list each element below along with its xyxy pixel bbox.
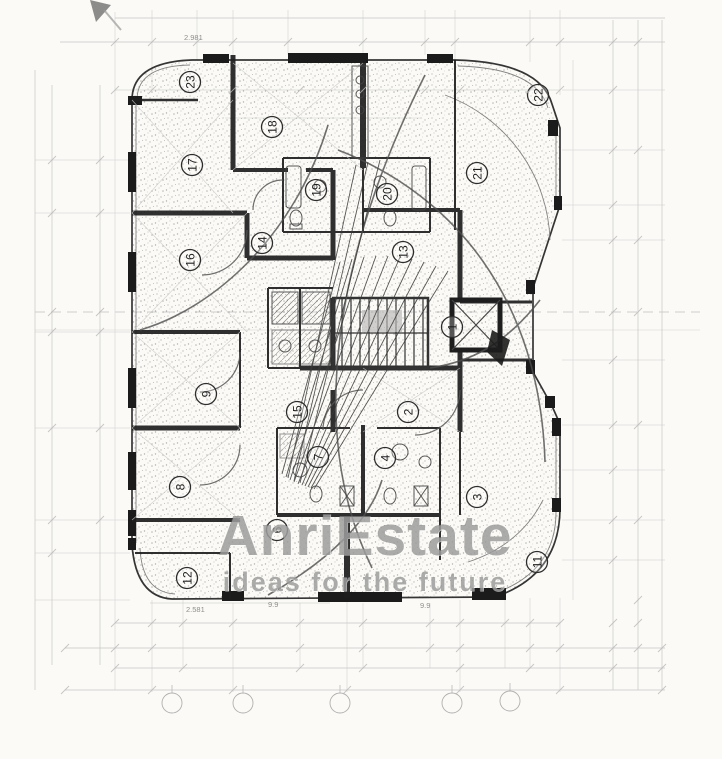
room-marker: 18 (262, 117, 283, 138)
scan-artifact-mark (90, 0, 121, 30)
axis-bubbles-layer (162, 683, 520, 713)
svg-text:21: 21 (471, 166, 485, 180)
svg-text:11: 11 (531, 555, 545, 568)
svg-text:19: 19 (310, 183, 324, 197)
svg-text:20: 20 (381, 187, 395, 201)
room-marker: 6 (267, 520, 288, 541)
dimension-label: 9.9 (420, 601, 430, 610)
room-marker: 4 (375, 448, 396, 469)
axis-bubble (330, 693, 350, 713)
room-marker: 19 (306, 180, 327, 201)
room-marker: 23 (180, 72, 201, 93)
svg-text:1: 1 (446, 323, 460, 330)
room-marker: 1 (442, 317, 463, 338)
svg-text:22: 22 (532, 88, 546, 102)
scanned-floor-plan-page: 1234678911121314151617181920212223 2.981… (0, 0, 722, 759)
axis-bubble (442, 693, 462, 713)
svg-text:8: 8 (174, 483, 188, 490)
room-marker: 8 (170, 477, 191, 498)
room-marker: 22 (528, 85, 549, 106)
room-marker: 11 (527, 552, 548, 573)
svg-text:7: 7 (312, 453, 326, 460)
room-marker: 14 (252, 233, 273, 254)
axis-bubble (162, 693, 182, 713)
room-marker: 3 (467, 487, 488, 508)
room-marker: 16 (180, 250, 201, 271)
room-marker: 17 (182, 155, 203, 176)
svg-text:4: 4 (379, 454, 393, 461)
room-marker: 15 (287, 402, 308, 423)
svg-text:13: 13 (397, 245, 411, 259)
axis-bubble (500, 691, 520, 711)
room-marker: 21 (467, 163, 488, 184)
svg-text:23: 23 (184, 75, 198, 89)
svg-text:3: 3 (471, 493, 485, 500)
svg-text:15: 15 (291, 405, 305, 419)
svg-text:12: 12 (181, 571, 195, 585)
room-marker: 20 (377, 184, 398, 205)
svg-text:16: 16 (184, 253, 198, 267)
room-marker: 12 (177, 568, 198, 589)
svg-text:6: 6 (271, 526, 285, 533)
axis-bubble (233, 693, 253, 713)
svg-text:18: 18 (266, 120, 280, 134)
svg-text:14: 14 (256, 236, 270, 250)
dimension-label: 9.9 (268, 600, 278, 609)
svg-text:2: 2 (402, 408, 416, 415)
room-marker: 9 (196, 384, 217, 405)
room-marker: 13 (393, 242, 414, 263)
dimension-label: 2.581 (186, 605, 205, 614)
room-marker: 2 (398, 402, 419, 423)
svg-text:17: 17 (186, 158, 200, 172)
dimension-label: 2.981 (184, 33, 203, 42)
room-marker: 7 (308, 447, 329, 468)
svg-text:9: 9 (200, 390, 214, 397)
floor-plan-drawing: 1234678911121314151617181920212223 2.981… (0, 0, 722, 759)
